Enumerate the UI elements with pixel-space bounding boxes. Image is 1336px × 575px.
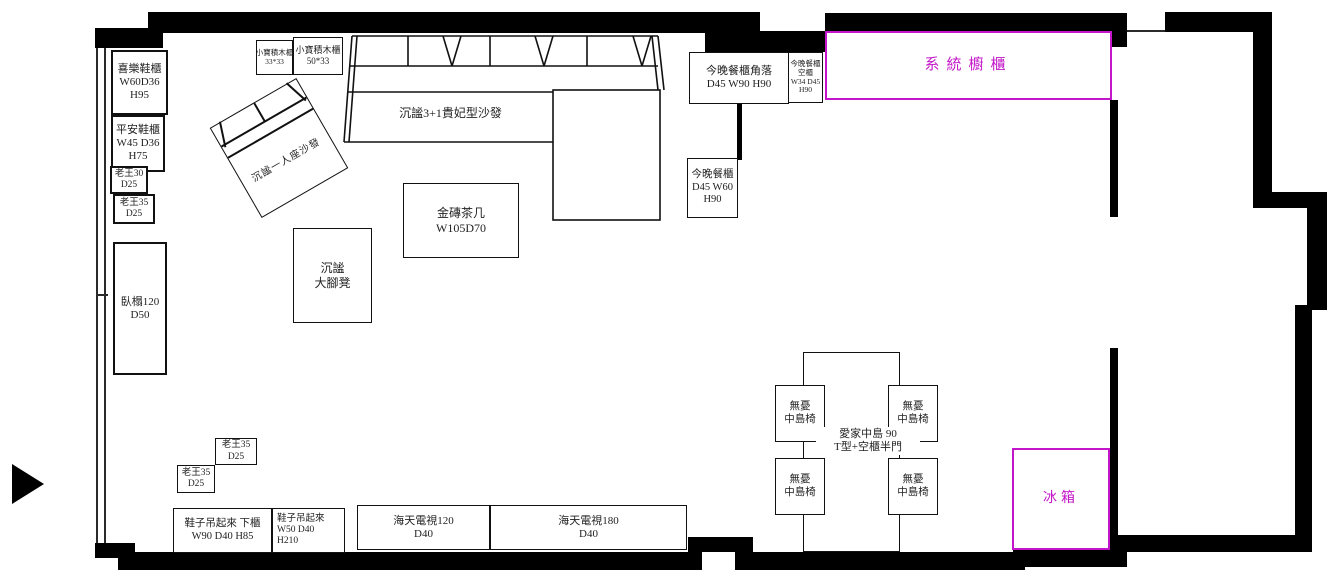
wall-top-left-corner-block (95, 28, 163, 48)
pingan-shoe-cabinet: 平安鞋櫃 W45 D36 H75 (111, 115, 165, 172)
wall-dining-partition (737, 103, 742, 160)
xile-shoe-cabinet: 喜樂鞋櫃 W60D36 H95 (111, 50, 168, 115)
wall-bottom-left (118, 552, 702, 570)
wall-opening-lintel (1127, 30, 1165, 32)
wall-right-step-horizontal (1253, 192, 1327, 208)
system-cabinet: 系統櫥櫃 (825, 31, 1112, 100)
wall-bottom-door-block (688, 537, 753, 552)
wall-far-right-lower (1295, 325, 1312, 537)
fridge: 冰箱 (1012, 448, 1110, 550)
laowang-35-left-cabinet: 老王35 D25 (113, 194, 155, 224)
laowang-30-cabinet: 老王30 D25 (110, 166, 148, 194)
single-sofa-label: 沉謐一人座沙發 (239, 128, 331, 190)
wall-right-upper (1253, 12, 1272, 193)
coffee-table: 金磚茶几 W105D70 (403, 183, 519, 258)
wall-top-corner-block (1110, 27, 1127, 47)
wall-below-fridge (1013, 550, 1127, 567)
tv-cabinet-120: 海天電視120 D40 (357, 505, 490, 550)
dining-cabinet-empty: 今晚餐櫃 空櫃 W34 D45 H90 (788, 52, 823, 103)
sectional-sofa-label: 沉謐3+1貴妃型沙發 (368, 103, 533, 123)
wall-right-interior-lower (1110, 348, 1118, 552)
floor-plan-canvas: 喜樂鞋櫃 W60D36 H95 平安鞋櫃 W45 D36 H75 老王30 D2… (0, 0, 1336, 575)
daybed: 臥榻120 D50 (113, 242, 167, 375)
ottoman: 沉謐 大腳凳 (293, 228, 372, 323)
island-label: 愛家中島 90 T型+空櫃半門 (816, 427, 920, 455)
wall-bottom-right (1118, 535, 1312, 552)
wall-bottom-middle (735, 552, 1025, 570)
wall-far-right-upper (1307, 208, 1327, 310)
block-cabinet-small: 小寶積木櫃 33*33 (256, 40, 293, 75)
wall-far-right-step (1295, 305, 1312, 327)
wall-bottom-left-step (95, 543, 135, 558)
tv-cabinet-180: 海天電視180 D40 (490, 505, 687, 550)
window-mullion-tick (96, 294, 108, 296)
block-cabinet-large: 小寶積木櫃 50*33 (293, 37, 343, 75)
laowang-35-upper-cabinet: 老王35 D25 (215, 438, 257, 465)
single-seat-sofa: 沉謐一人座沙發 (210, 78, 349, 218)
entry-arrow-icon (12, 464, 44, 504)
island-chair-bottom-left: 無憂 中島椅 (775, 458, 825, 515)
shoe-hang-lower-cabinet: 鞋子吊起來 下櫃 W90 D40 H85 (173, 508, 272, 553)
wall-top-jog-band (758, 31, 826, 52)
wall-right-interior-upper (1110, 100, 1118, 217)
wall-top-jog-block (705, 12, 760, 52)
dining-cabinet: 今晚餐櫃 D45 W60 H90 (687, 158, 738, 218)
shoe-hang-tall-cabinet: 鞋子吊起來 W50 D40 H210 (272, 508, 345, 553)
sofa-armrest-seam-right (285, 83, 305, 102)
dining-cabinet-corner: 今晚餐櫃角落 D45 W90 H90 (689, 52, 789, 104)
island-chair-bottom-right: 無憂 中島椅 (888, 458, 938, 515)
sofa-back-divider (254, 103, 266, 122)
laowang-35-lower-cabinet: 老王35 D25 (177, 465, 215, 493)
wall-top-mid-right (825, 13, 1127, 31)
